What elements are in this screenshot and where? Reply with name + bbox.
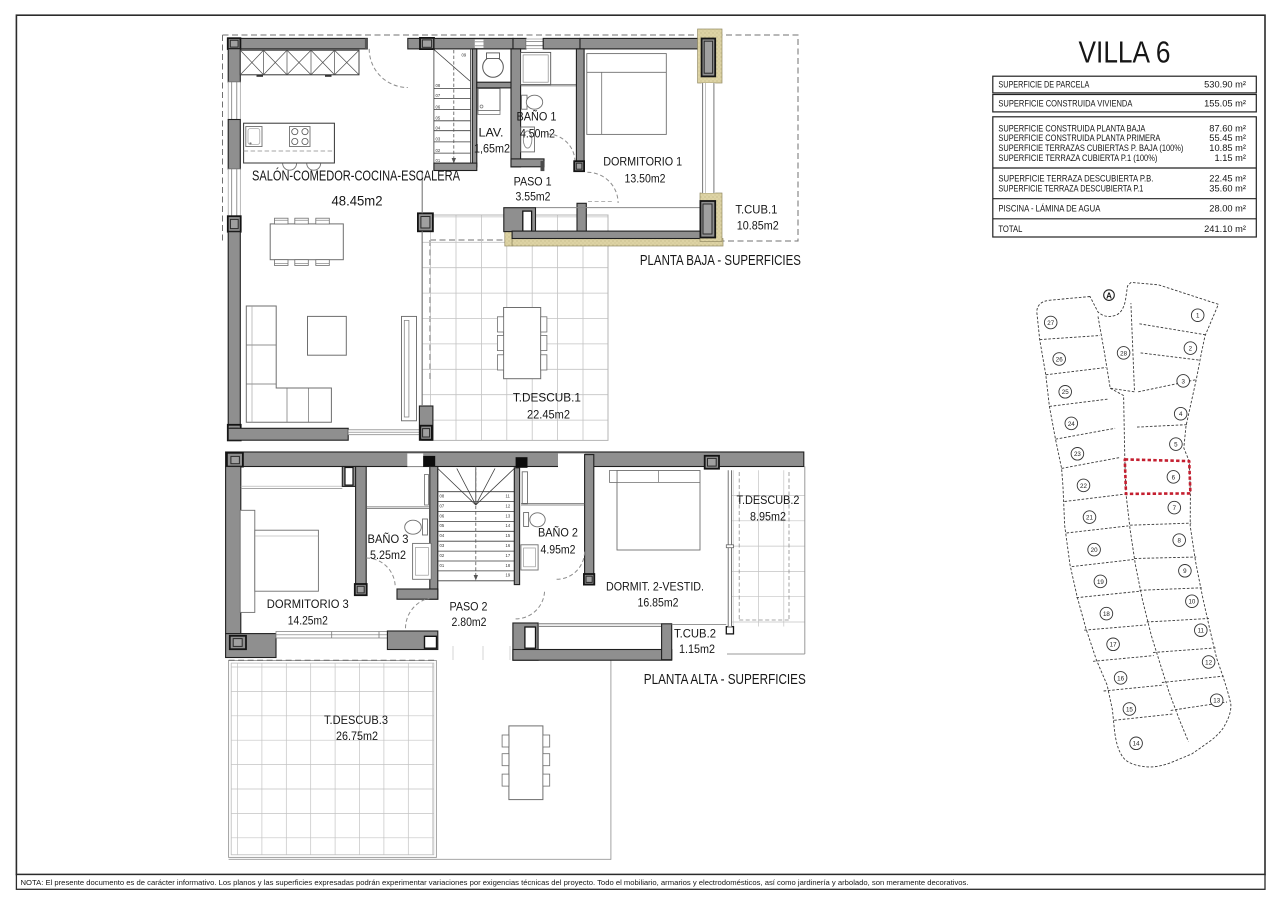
svg-text:11: 11: [506, 494, 511, 499]
svg-text:T.CUB.2: T.CUB.2: [674, 628, 716, 640]
svg-text:12: 12: [1205, 659, 1212, 666]
svg-text:87.60 m²: 87.60 m²: [1209, 123, 1246, 133]
svg-text:13.50m2: 13.50m2: [625, 174, 666, 186]
svg-text:155.05 m²: 155.05 m²: [1204, 99, 1246, 109]
svg-text:17: 17: [506, 553, 511, 558]
svg-text:PASO 2: PASO 2: [450, 602, 488, 614]
svg-text:4.95m2: 4.95m2: [541, 545, 576, 557]
svg-text:08: 08: [436, 83, 441, 88]
svg-text:SUPERFICIE TERRAZA DESCUBIERTA: SUPERFICIE TERRAZA DESCUBIERTA P.B.: [998, 174, 1153, 184]
svg-text:1,65m2: 1,65m2: [474, 144, 510, 156]
svg-text:4.50m2: 4.50m2: [520, 129, 555, 141]
svg-text:SUPERFICIE TERRAZA CUBIERTA P.: SUPERFICIE TERRAZA CUBIERTA P.1 (100%): [998, 153, 1157, 163]
svg-text:23: 23: [1074, 451, 1081, 458]
svg-text:NOTA: El presente documento es: NOTA: El presente documento es de caráct…: [21, 878, 969, 887]
svg-text:SUPERFICIE CONSTRUIDA PLANTA B: SUPERFICIE CONSTRUIDA PLANTA BAJA: [998, 123, 1146, 133]
svg-text:PASO 1: PASO 1: [514, 177, 552, 189]
svg-text:26.75m2: 26.75m2: [336, 731, 378, 743]
svg-text:17: 17: [1110, 642, 1117, 649]
svg-text:SUPERFICIE CONSTRUIDA VIVIENDA: SUPERFICIE CONSTRUIDA VIVIENDA: [998, 99, 1133, 109]
svg-text:9: 9: [1183, 568, 1187, 575]
svg-text:3.55m2: 3.55m2: [516, 192, 551, 204]
svg-text:13: 13: [506, 513, 511, 518]
svg-text:55.45 m²: 55.45 m²: [1209, 133, 1246, 143]
svg-text:1.15m2: 1.15m2: [679, 644, 715, 656]
svg-text:07: 07: [440, 503, 445, 508]
svg-text:2.80m2: 2.80m2: [452, 617, 487, 629]
svg-text:7: 7: [1173, 505, 1177, 512]
svg-text:02: 02: [440, 553, 445, 558]
svg-text:12: 12: [506, 503, 511, 508]
svg-text:35.60 m²: 35.60 m²: [1209, 183, 1246, 193]
svg-text:07: 07: [436, 93, 441, 98]
svg-text:2: 2: [1189, 346, 1193, 353]
svg-text:T.DESCUB.2: T.DESCUB.2: [737, 495, 800, 507]
svg-text:3: 3: [1181, 378, 1185, 385]
svg-text:1.15 m²: 1.15 m²: [1214, 153, 1246, 163]
svg-text:A: A: [1106, 291, 1112, 300]
svg-text:5.25m2: 5.25m2: [370, 550, 406, 562]
svg-text:03: 03: [436, 137, 441, 142]
svg-text:01: 01: [436, 158, 441, 163]
svg-text:15: 15: [506, 533, 511, 538]
svg-text:14: 14: [1133, 741, 1140, 748]
svg-text:19: 19: [506, 573, 511, 578]
svg-text:28: 28: [1120, 350, 1127, 357]
svg-text:8: 8: [1177, 538, 1181, 545]
svg-text:PLANTA ALTA - SUPERFICIES: PLANTA ALTA - SUPERFICIES: [644, 671, 806, 688]
svg-text:14.25m2: 14.25m2: [288, 615, 328, 627]
svg-text:14: 14: [506, 523, 511, 528]
svg-text:DORMITORIO 1: DORMITORIO 1: [603, 157, 682, 169]
svg-text:SUPERFICIE CONSTRUIDA PLANTA P: SUPERFICIE CONSTRUIDA PLANTA PRIMERA: [998, 133, 1161, 143]
svg-text:16.85m2: 16.85m2: [638, 598, 679, 610]
svg-text:03: 03: [440, 543, 445, 548]
svg-text:T.DESCUB.3: T.DESCUB.3: [324, 715, 388, 727]
svg-text:02: 02: [436, 148, 441, 153]
svg-text:21: 21: [1086, 515, 1093, 522]
svg-text:SUPERFICIE TERRAZA DESCUBIERTA: SUPERFICIE TERRAZA DESCUBIERTA P.1: [998, 183, 1143, 193]
svg-text:530.90 m²: 530.90 m²: [1204, 80, 1246, 90]
svg-text:10.85m2: 10.85m2: [737, 221, 779, 233]
svg-text:22.45m2: 22.45m2: [527, 410, 570, 422]
svg-text:241.10 m²: 241.10 m²: [1204, 224, 1246, 234]
svg-text:16: 16: [506, 543, 511, 548]
svg-text:5: 5: [1174, 442, 1178, 449]
svg-text:10: 10: [1188, 599, 1195, 606]
svg-text:6: 6: [1172, 474, 1176, 481]
svg-text:04: 04: [436, 126, 441, 131]
svg-text:4: 4: [1179, 411, 1183, 418]
svg-text:06: 06: [436, 104, 441, 109]
svg-text:06: 06: [440, 513, 445, 518]
svg-text:16: 16: [1117, 675, 1124, 682]
svg-text:22.45 m²: 22.45 m²: [1209, 174, 1246, 184]
svg-text:SUPERFICIE DE PARCELA: SUPERFICIE DE PARCELA: [998, 80, 1090, 90]
svg-text:SUPERFICIE TERRAZAS CUBIERTAS: SUPERFICIE TERRAZAS CUBIERTAS P. BAJA (1…: [998, 143, 1183, 153]
svg-text:05: 05: [436, 116, 441, 121]
svg-text:08: 08: [440, 494, 445, 499]
svg-text:25: 25: [1062, 389, 1069, 396]
svg-text:T.CUB.1: T.CUB.1: [735, 205, 777, 217]
svg-text:09: 09: [462, 53, 467, 58]
svg-text:BAÑO 2: BAÑO 2: [538, 526, 578, 539]
svg-text:18: 18: [506, 563, 511, 568]
svg-text:DORMIT. 2-VESTID.: DORMIT. 2-VESTID.: [606, 582, 704, 594]
svg-text:15: 15: [1126, 706, 1133, 713]
svg-text:8.95m2: 8.95m2: [750, 512, 786, 524]
svg-text:TOTAL: TOTAL: [998, 224, 1022, 234]
svg-text:11: 11: [1198, 628, 1205, 635]
svg-text:BAÑO 3: BAÑO 3: [368, 533, 409, 546]
svg-text:20: 20: [1091, 547, 1098, 554]
svg-text:18: 18: [1103, 611, 1110, 618]
svg-text:04: 04: [440, 533, 445, 538]
svg-text:24: 24: [1068, 421, 1075, 428]
svg-text:27: 27: [1047, 320, 1054, 327]
svg-text:28.00 m²: 28.00 m²: [1209, 203, 1246, 213]
svg-text:26: 26: [1056, 356, 1063, 363]
svg-text:BAÑO 1: BAÑO 1: [517, 111, 557, 124]
svg-text:VILLA 6: VILLA 6: [1079, 36, 1171, 70]
svg-text:19: 19: [1097, 579, 1104, 586]
svg-text:48.45m2: 48.45m2: [332, 194, 383, 209]
svg-text:DORMITORIO 3: DORMITORIO 3: [267, 599, 349, 611]
svg-text:SALÓN-COMEDOR-COCINA-ESCALERA: SALÓN-COMEDOR-COCINA-ESCALERA: [252, 168, 460, 185]
svg-text:LAV.: LAV.: [479, 128, 504, 140]
svg-text:01: 01: [440, 563, 445, 568]
svg-text:10.85 m²: 10.85 m²: [1209, 143, 1246, 153]
svg-text:PLANTA BAJA - SUPERFICIES: PLANTA BAJA - SUPERFICIES: [640, 252, 801, 269]
svg-text:1: 1: [1196, 313, 1200, 320]
svg-text:13: 13: [1213, 698, 1220, 705]
svg-text:PISCINA - LÁMINA DE AGUA: PISCINA - LÁMINA DE AGUA: [998, 203, 1101, 213]
svg-text:T.DESCUB.1: T.DESCUB.1: [513, 393, 581, 405]
svg-text:22: 22: [1080, 483, 1087, 490]
svg-text:05: 05: [440, 523, 445, 528]
